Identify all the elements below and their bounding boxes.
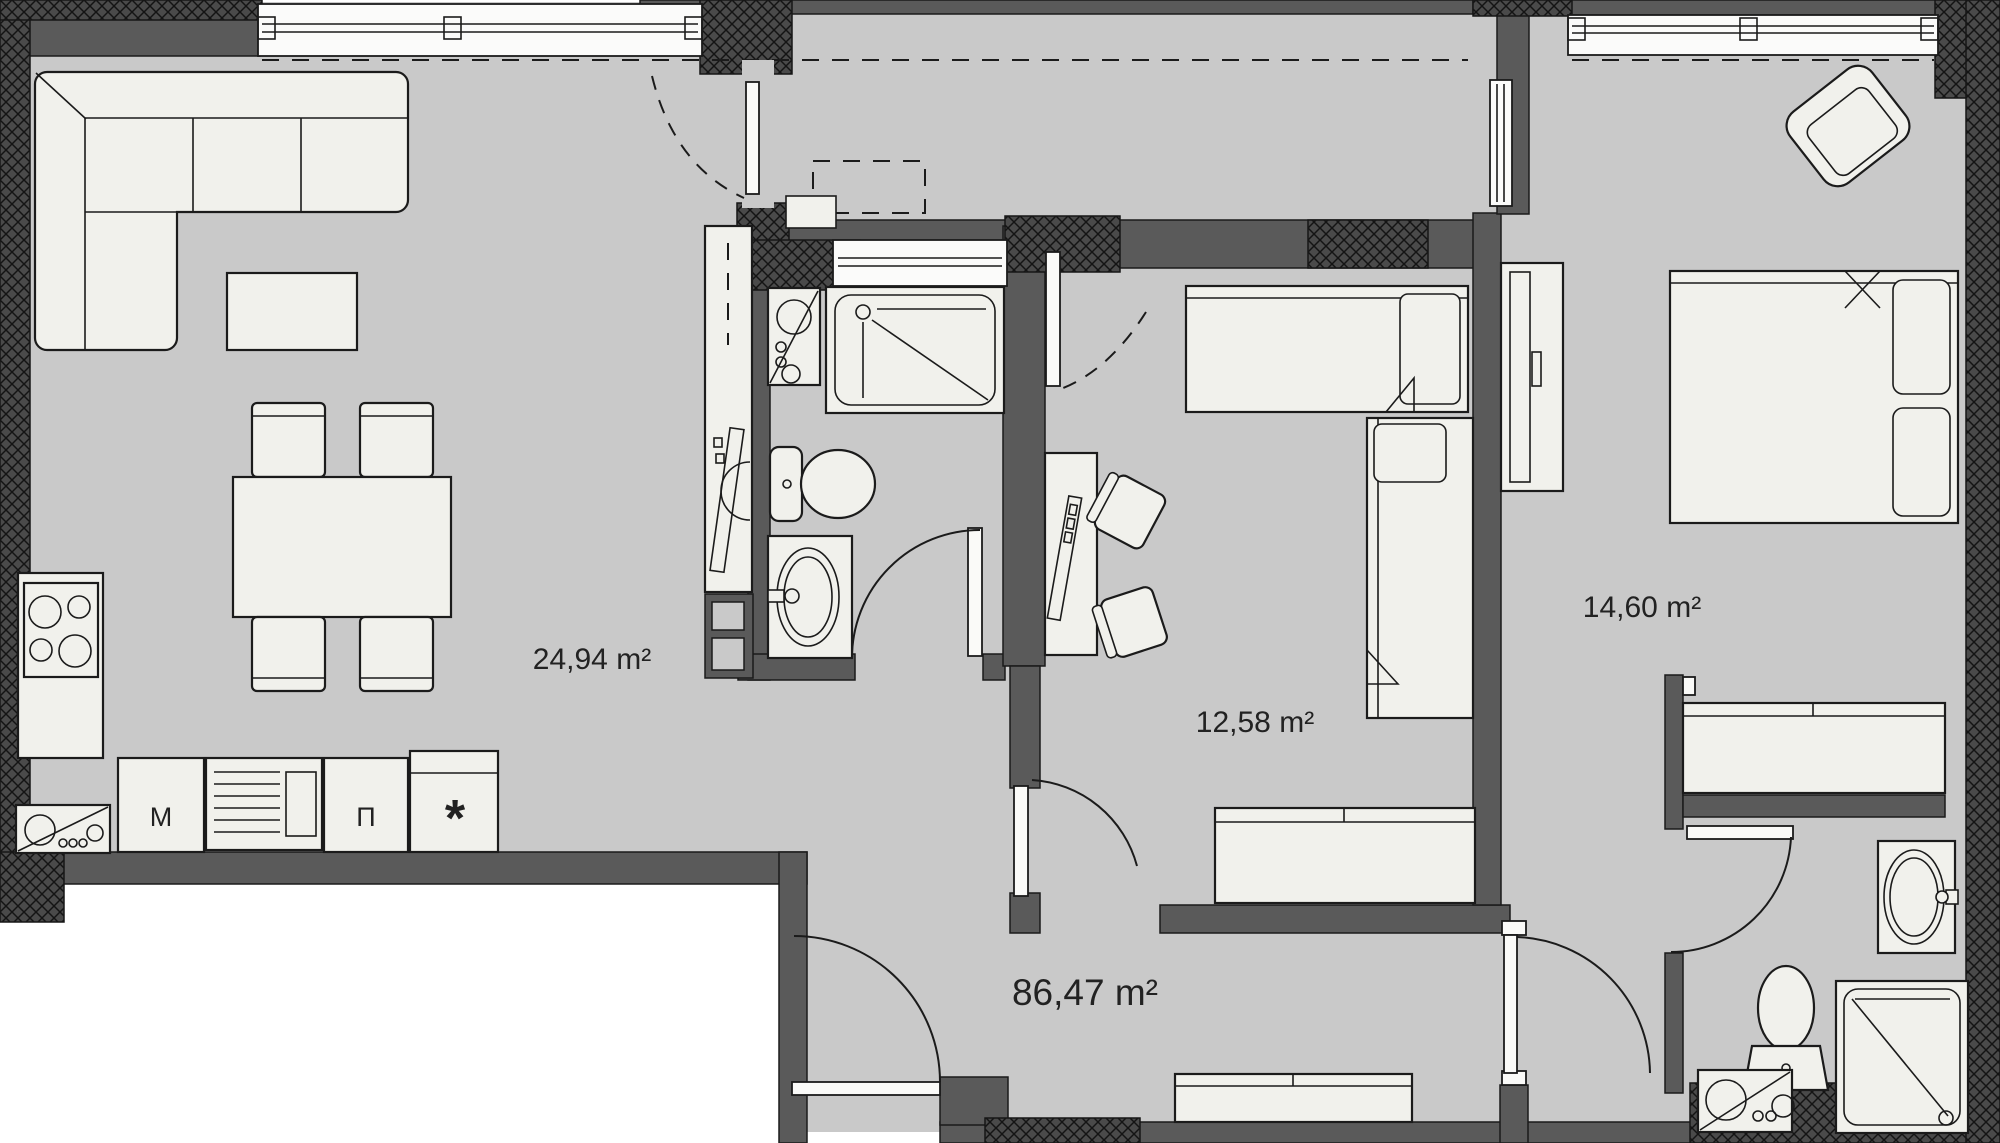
- wall-kids-left-low: [1010, 893, 1040, 933]
- washbasin: [768, 536, 852, 658]
- bedroom-side-window: [1490, 80, 1512, 206]
- desk: [1045, 453, 1097, 655]
- outside-area: [0, 884, 779, 1143]
- floor-plan-svg: 24,94 m² 12,58 m² 14,60 m² 86,47 m² М П …: [0, 0, 2000, 1143]
- wall-bath2-top: [1683, 795, 1945, 817]
- wardrobe: [1501, 263, 1563, 491]
- wall-lobe-bath2-a: [1665, 675, 1683, 829]
- wall-ext-topleft: [0, 0, 262, 20]
- kids-dresser: [1215, 808, 1475, 903]
- bedroom-dresser: [1683, 703, 1945, 793]
- cabinet-p-label: П: [356, 802, 375, 832]
- single-bed-top: [1186, 286, 1468, 412]
- kitchen-sink: [16, 805, 110, 853]
- corridor: [1175, 1074, 1412, 1122]
- bedroom-area-label: 14,60 m²: [1583, 591, 1701, 624]
- chair: [252, 403, 325, 477]
- shower-tray-2: [1836, 981, 1968, 1133]
- chair: [360, 617, 433, 691]
- single-bed-right: [1367, 418, 1473, 718]
- wall-kids-left-mid: [1010, 666, 1040, 788]
- hall-tall-cabinet: [705, 226, 752, 592]
- chair: [360, 403, 433, 477]
- total-area-label: 86,47 m²: [1012, 972, 1158, 1013]
- chair: [252, 617, 325, 691]
- column-kids-top-a: [1005, 216, 1120, 272]
- double-bed: [1670, 271, 1958, 523]
- living-area-label: 24,94 m²: [533, 643, 651, 676]
- wall-ext-right: [1966, 0, 2000, 1143]
- wall-kids-left-upper: [1003, 226, 1045, 666]
- washbasin-2: [1878, 841, 1958, 953]
- wall-living-bottom: [0, 852, 807, 884]
- hob: [24, 583, 98, 677]
- ac-unit: [786, 196, 836, 228]
- column-kids-top-b: [1308, 220, 1428, 268]
- kids-window: [833, 240, 1007, 286]
- floor-plan-canvas: 24,94 m² 12,58 m² 14,60 m² 86,47 m² М П …: [0, 0, 2000, 1143]
- column-loggia-right: [1473, 0, 1572, 16]
- toilet: [770, 447, 875, 521]
- coffee-table: [227, 273, 357, 350]
- stove-marker-label: *: [445, 790, 466, 848]
- wall-lobe-bath2-b: [1665, 953, 1683, 1093]
- shoe-cabinet: [1175, 1074, 1412, 1122]
- washing-machine: [768, 288, 820, 385]
- column-bottom-mid: [985, 1118, 1140, 1143]
- wall-kids-bottom: [1160, 905, 1510, 933]
- cabinet-m-label: М: [150, 802, 173, 832]
- high-window-leaf: [1046, 252, 1060, 386]
- wall-corridor-left: [779, 852, 807, 1143]
- wall-top-west: [26, 16, 260, 56]
- wall-kids-bedroom: [1473, 213, 1501, 905]
- kids-area-label: 12,58 m²: [1196, 706, 1314, 739]
- column-kitchen-corner: [0, 852, 64, 922]
- shower-tray: [826, 287, 1004, 413]
- dining-table: [233, 477, 451, 617]
- shaft: [705, 594, 753, 678]
- bedroom-window: [1568, 15, 1938, 55]
- wall-bath1-bottom-b: [983, 654, 1005, 680]
- wall-below-bedroom-door: [1500, 1085, 1528, 1143]
- living-window: [258, 4, 702, 56]
- washing-machine-2: [1698, 1070, 1794, 1132]
- bedroom-top-edge: [1570, 0, 1938, 15]
- dishwasher: [206, 758, 322, 850]
